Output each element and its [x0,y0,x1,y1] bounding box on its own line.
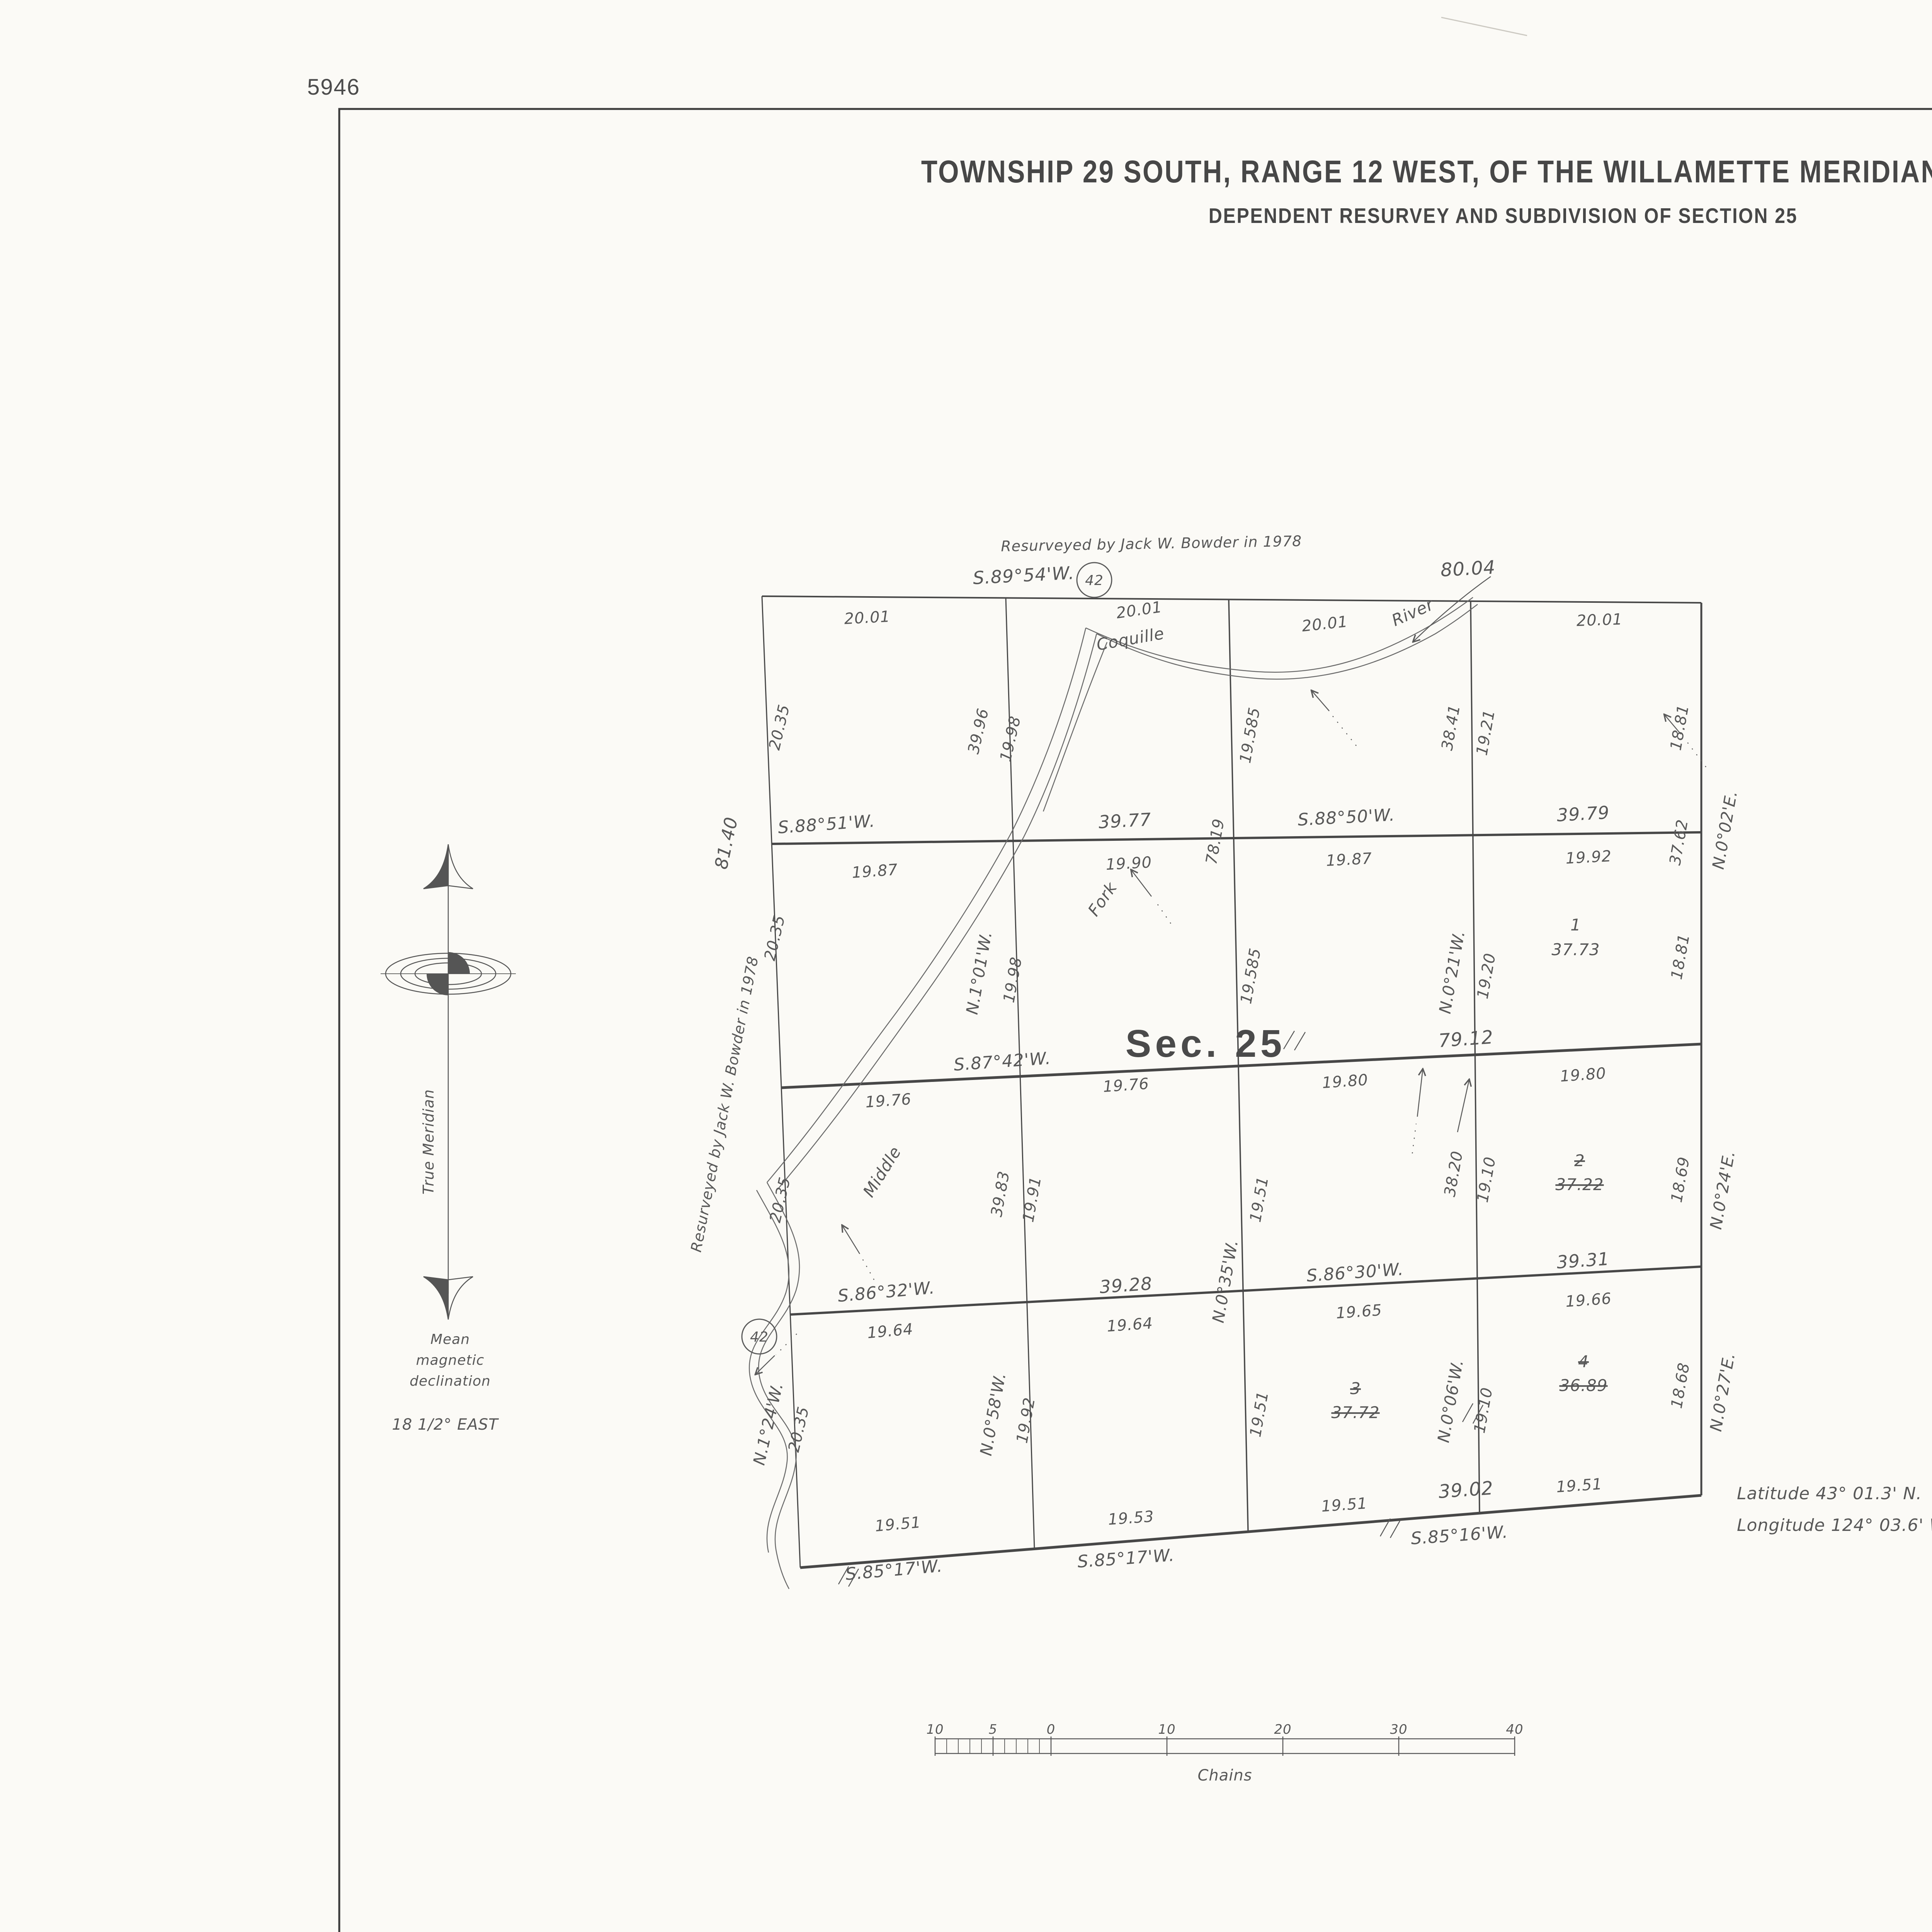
map-label: 39.79 [1556,802,1610,825]
map-label: 39.28 [1099,1273,1153,1297]
lot-area-4: 36.89 [1559,1376,1607,1395]
map-label: 19.66 [1565,1290,1612,1311]
map-label: 38.41 [1438,703,1464,752]
lot-area-2: 37.22 [1555,1175,1604,1194]
map-label: 19.585 [1237,947,1265,1005]
lot-number-3: 3 [1350,1379,1361,1398]
map-label: 39.02 [1438,1477,1494,1503]
map-label: 19.51 [874,1514,922,1535]
map-label: N.0°35'W. [1209,1238,1242,1324]
map-label: 19.90 [1105,854,1152,874]
page-title: TOWNSHIP 29 SOUTH, RANGE 12 WEST, OF THE… [692,154,1932,190]
map-label: 39.83 [988,1170,1013,1218]
resurvey-note-top: Resurveyed by Jack W. Bowder in 1978 [1001,532,1302,555]
map-label: S.85°17'W. [845,1556,943,1584]
river-name-fork: Fork [1084,878,1121,920]
map-label: 19.76 [1102,1075,1150,1096]
map-labels-layer: 5946ORIGINALUSAResurveyed by Jack W. Bow… [307,75,1932,1932]
compass-icon [381,844,516,1320]
map-label: magnetic [416,1352,485,1368]
resurvey-note-left: Resurveyed by Jack W. Bowder in 1978 [687,955,762,1253]
map-label: 10 [1158,1722,1175,1737]
map-label: S.86°32'W. [837,1278,935,1306]
map-label: 20.01 [1301,613,1349,635]
lot-area-3: 37.72 [1331,1403,1379,1422]
map-label: 30 [1390,1722,1407,1737]
title-block: TOWNSHIP 29 SOUTH, RANGE 12 WEST, OF THE… [692,154,1932,228]
map-label: 38.20 [1441,1150,1466,1198]
map-label: 19.51 [1321,1495,1368,1515]
map-label: 18.68 [1668,1361,1693,1410]
bearing-east-boundary-mid: N.0°24'E. [1706,1149,1739,1231]
map-label: 19.92 [1013,1396,1039,1445]
river-name-middle: Middle [859,1143,905,1201]
river-name-coquille: Coquille [1095,624,1166,654]
map-label: 39.31 [1556,1248,1610,1272]
neat-line-border [339,109,1932,1932]
map-label: 19.51 [1556,1475,1603,1496]
bearing-north-boundary: S.89°54'W. [972,562,1075,588]
lot-number-1: 1 [1570,915,1581,934]
map-label: 20.35 [766,1175,794,1225]
map-label: N.1°01'W. [963,930,996,1016]
map-label: 40 [1506,1722,1523,1737]
river-name-river: River [1389,595,1437,630]
map-label: 19.585 [1236,706,1264,765]
map-label: 19.87 [1325,850,1372,870]
plat-sheet: 5946ORIGINALUSAResurveyed by Jack W. Bow… [0,0,1932,1932]
map-label: 20.35 [765,703,793,752]
map-label: 19.21 [1473,708,1498,757]
latitude-label: Latitude 43° 01.3' N. [1737,1484,1922,1503]
map-label: 19.80 [1560,1065,1607,1085]
scalebar-unit: Chains [1197,1767,1252,1784]
map-label: 39.96 [964,707,992,756]
corner-flag-north: 42 [1085,573,1104,588]
map-label: 20.01 [1576,611,1623,630]
map-label: S.88°50'W. [1297,805,1395,830]
map-label: S.88°51'W. [777,811,876,837]
map-label: 20.35 [761,913,789,963]
map-label: 79.12 [1438,1026,1494,1052]
map-label: 0 [1047,1722,1056,1737]
lot-area-1: 37.73 [1551,940,1600,959]
map-label: 19.20 [1474,952,1499,1000]
map-label: 20 [1274,1722,1291,1737]
page-subtitle: DEPENDENT RESURVEY AND SUBDIVISION OF SE… [692,203,1932,228]
distance-west-total: 81.40 [711,815,742,871]
corner-flag-west: 42 [750,1329,769,1345]
map-label: 19.65 [1335,1301,1383,1322]
map-label: 10 [926,1722,944,1737]
distance-north-total: 80.04 [1440,556,1496,581]
declination-value: 18 1/2° EAST [392,1416,499,1434]
map-label: 19.51 [1247,1390,1272,1439]
map-label: 18.69 [1668,1155,1693,1204]
map-label: 20.01 [844,608,891,628]
map-label: 20.01 [1115,598,1163,622]
map-label: N.0°58'W. [976,1371,1010,1457]
map-label: 18.81 [1668,932,1693,981]
plat-svg: 5946ORIGINALUSAResurveyed by Jack W. Bow… [0,0,1932,1932]
map-label: S.85°17'W. [1077,1545,1175,1571]
map-label: 19.98 [997,714,1024,764]
scale-bar [935,1736,1515,1756]
map-label: 19.10 [1474,1155,1499,1204]
map-label: 5 [989,1722,998,1737]
map-label: S.87°42'W. [953,1048,1052,1075]
fold-crease [340,17,1527,1932]
map-label: 19.53 [1107,1508,1155,1529]
map-label: declination [410,1373,491,1389]
map-label: 19.98 [1000,956,1026,1004]
bearing-east-boundary-north: N.0°02'E. [1709,789,1741,871]
map-label: 39.77 [1098,809,1151,832]
lot-number-2: 2 [1574,1151,1585,1170]
map-label: 19.51 [1247,1175,1272,1224]
map-label: 19.80 [1321,1071,1369,1092]
lot-number-4: 4 [1578,1352,1589,1371]
map-label: 19.64 [866,1320,914,1342]
map-label: 19.64 [1106,1315,1153,1335]
map-label: N.0°21'W. [1435,929,1469,1015]
map-label: Mean [430,1332,470,1347]
map-label: 78.19 [1202,817,1228,866]
break-marks [838,1031,1483,1587]
map-label: S.85°16'W. [1410,1522,1509,1548]
section-label: Sec. 25 [1126,1022,1286,1065]
longitude-label: Longitude 124° 03.6' W. [1737,1515,1932,1535]
sheet-number: 5946 [307,75,360,100]
map-label: 19.87 [851,861,898,882]
map-label: N.0°06'W. [1434,1358,1467,1444]
map-label: 19.92 [1565,847,1612,867]
map-label: 19.76 [865,1090,912,1111]
bearing-east-boundary-south: N.0°27'E. [1706,1351,1739,1433]
map-label: 37.62 [1666,818,1692,867]
map-label: 19.10 [1471,1386,1496,1435]
true-meridian-label: True Meridian [420,1089,437,1195]
map-label: 18.81 [1667,703,1692,752]
